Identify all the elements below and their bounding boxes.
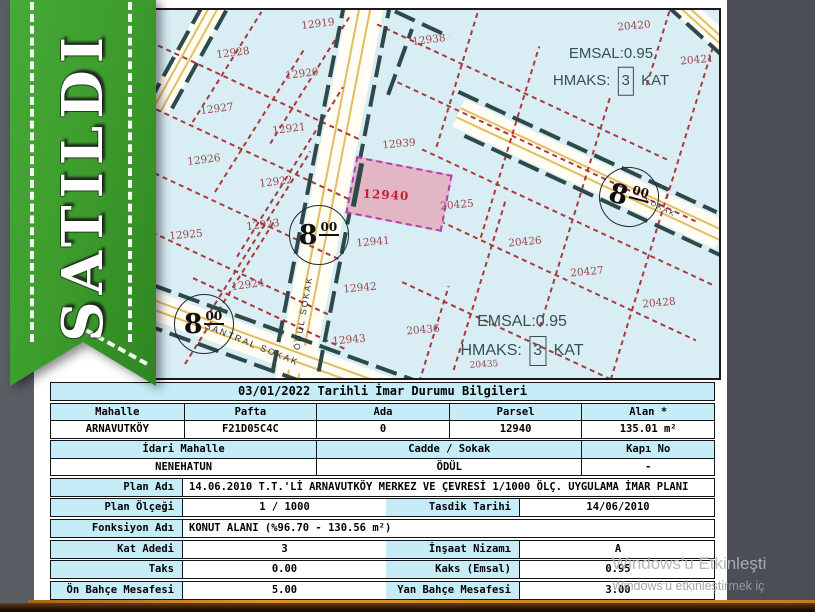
table-cell: Mahalle: [51, 404, 184, 421]
detail-label: Taks: [51, 561, 182, 578]
table-cell: -: [581, 459, 714, 476]
parcel-boundary-line: [666, 45, 715, 199]
parcel-label: 12939: [382, 137, 416, 152]
table-cell: İdari Mahalle: [51, 441, 316, 458]
detail-row-box: Plan Ölçeği1 / 1000Tasdik Tarihi14/06/20…: [50, 498, 715, 517]
hmaks-label: HMAKS: 3 KAT: [460, 336, 583, 366]
parcel-label: 20420: [617, 19, 651, 34]
detail-label: Kaks (Emsal): [386, 561, 519, 578]
right-gray-panel: [727, 0, 815, 601]
zoning-label: EMSAL:0.95HMAKS: 3 KAT: [460, 308, 583, 366]
identity-section: MahallePaftaAdaParselAlan *ARNAVUTKÖYF21…: [50, 403, 715, 439]
table-cell: NENEHATUN: [51, 459, 316, 476]
parcel-label: 12919: [301, 16, 336, 32]
road-width-marker: 800: [289, 205, 349, 265]
detail-row-box: Fonksiyon AdıKONUT ALANI (%96.70 - 130.5…: [50, 519, 715, 538]
kat-box: 3: [529, 336, 546, 366]
parcel-label: 20436: [406, 323, 440, 338]
parcel-label: 12925: [169, 228, 203, 243]
table-cell: ARNAVUTKÖY: [51, 421, 184, 438]
table-cell: Cadde / Sokak: [316, 441, 581, 458]
road-center-line: [456, 116, 720, 240]
ribbon-banner: SATILDI: [10, 0, 156, 398]
parcel-label: 20425: [440, 198, 474, 213]
detail-label: Fonksiyon Adı: [51, 520, 182, 537]
table-cell: F21D05C4C: [184, 421, 317, 438]
parcel-label: 20428: [642, 296, 676, 311]
parcel-label: 12942: [343, 281, 377, 296]
windows-activation-watermark-line1: Windows'u Etkinleşti: [612, 554, 766, 574]
detail-value: 14.06.2010 T.T.'Lİ ARNAVUTKÖY MERKEZ VE …: [182, 479, 716, 496]
table-cell: Pafta: [184, 404, 317, 421]
kat-box: 3: [618, 67, 634, 95]
table-row: MahallePaftaAdaParselAlan *: [51, 404, 714, 421]
table-cell: Ada: [316, 404, 449, 421]
detail-label: Ön Bahçe Mesafesi: [51, 582, 182, 599]
detail-label: İnşaat Nizamı: [386, 541, 519, 558]
parcel-label: 12943: [332, 333, 366, 348]
parcel-label: 20426: [508, 235, 542, 250]
parcel-label: 12941: [356, 235, 390, 250]
emsal-label: EMSAL:0.95: [460, 308, 583, 336]
detail-label: Yan Bahçe Mesafesi: [386, 582, 519, 599]
parcel-label: 12920: [285, 66, 320, 82]
table-row: ARNAVUTKÖYF21D05C4C012940135.01 m²: [51, 420, 714, 438]
detail-label: Plan Adı: [51, 479, 182, 496]
emsal-label: EMSAL:0.95: [553, 41, 669, 67]
detail-row: Fonksiyon AdıKONUT ALANI (%96.70 - 130.5…: [51, 520, 714, 537]
table-cell: Kapı No: [581, 441, 714, 458]
table-cell: 0: [316, 421, 449, 438]
ribbon-dash-notch-left: [22, 354, 96, 397]
table-cell: 12940: [449, 421, 582, 438]
zoning-label: EMSAL:0.95HMAKS: 3 KAT: [553, 41, 669, 96]
parcel-label: 12940: [362, 187, 409, 203]
detail-value: 3: [182, 541, 386, 558]
road-width-marker: 800: [174, 294, 234, 354]
detail-row: Plan Ölçeği1 / 1000Tasdik Tarihi14/06/20…: [51, 499, 714, 516]
parcel-label: 12921: [272, 121, 307, 137]
parcel-label: 12924: [231, 277, 266, 293]
hmaks-label: HMAKS: 3 KAT: [553, 67, 669, 95]
parcel-label: 20421: [680, 53, 714, 68]
detail-value: 0.00: [182, 561, 386, 578]
table-row: İdari MahalleCadde / SokakKapı No: [51, 441, 714, 458]
detail-label: Plan Ölçeği: [51, 499, 182, 516]
table-cell: ÖDÜL: [316, 459, 581, 476]
table-cell: Parsel: [449, 404, 582, 421]
detail-value: KONUT ALANI (%96.70 - 130.56 m²): [182, 520, 716, 537]
detail-value: 5.00: [182, 582, 386, 599]
cadastral-map: 1291912928129201293812927129211293912926…: [152, 8, 721, 380]
screen: 1291912928129201293812927129211293912926…: [0, 0, 815, 612]
parcel-label: 20427: [570, 265, 604, 280]
detail-label: Kat Adedi: [51, 541, 182, 558]
table-cell: 135.01 m²: [581, 421, 714, 438]
parcel-label: 12938: [412, 32, 447, 48]
sold-ribbon: SATILDI: [10, 0, 156, 398]
ribbon-dash-right: [128, 2, 132, 342]
detail-row-box: Plan Adı14.06.2010 T.T.'Lİ ARNAVUTKÖY ME…: [50, 478, 715, 497]
ribbon-dash-left: [30, 2, 34, 342]
ribbon-label: SATILDI: [50, 30, 116, 342]
detail-value: 14/06/2010: [519, 499, 716, 516]
parcel-label: 12926: [187, 152, 222, 168]
detail-label: Tasdik Tarihi: [386, 499, 519, 516]
parcel-label: 12927: [200, 101, 235, 117]
table-row: NENEHATUNÖDÜL-: [51, 458, 714, 476]
windows-activation-watermark-line2: Windows'u etkinleştirmek iç: [612, 579, 764, 593]
address-section: İdari MahalleCadde / SokakKapı NoNENEHAT…: [50, 440, 715, 476]
parcel-label: 12928: [216, 45, 251, 61]
setback-line: [386, 28, 414, 95]
table-cell: Alan *: [581, 404, 714, 421]
window-edge-dark-bar: [0, 603, 815, 612]
detail-row: Plan Adı14.06.2010 T.T.'Lİ ARNAVUTKÖY ME…: [51, 479, 714, 496]
detail-value: 1 / 1000: [182, 499, 386, 516]
